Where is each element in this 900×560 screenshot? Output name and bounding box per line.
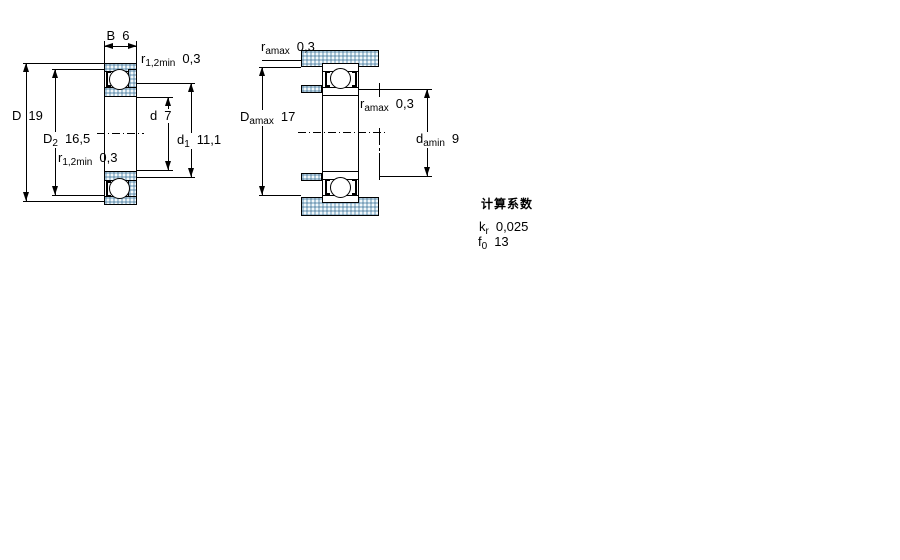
arrowhead xyxy=(52,69,58,78)
dim-value: 0,3 xyxy=(182,51,200,66)
arrowhead xyxy=(165,161,171,170)
abutment-face-line xyxy=(379,128,380,145)
bearing1-ball-bottom xyxy=(109,178,130,199)
dim-subscript: amax xyxy=(364,103,388,114)
bearing2-ball-bottom xyxy=(330,177,351,198)
bearing2-ball-top xyxy=(330,68,351,89)
ext-line xyxy=(23,63,104,64)
dim-symbol: D xyxy=(240,109,249,124)
bearing2-ring-line xyxy=(323,95,358,96)
bearing2-ring-line xyxy=(323,171,358,172)
dim-subscript: 1,2min xyxy=(62,157,92,168)
bearing2-shield-left-bottom xyxy=(325,179,330,195)
dim-line-d1 xyxy=(191,83,192,177)
arrowhead xyxy=(424,89,430,98)
dim-symbol: D xyxy=(12,108,21,123)
dim-subscript: amin xyxy=(423,138,445,149)
dim-value: 19 xyxy=(28,108,42,123)
dim-symbol: B xyxy=(107,28,116,43)
bearing2-centerline xyxy=(298,132,386,133)
dim-line-Damax xyxy=(262,67,263,195)
arrowhead xyxy=(259,186,265,195)
factor-value: 13 xyxy=(494,234,508,249)
ext-line xyxy=(52,195,104,196)
dim-symbol: d xyxy=(150,108,157,123)
factor-symbol: k xyxy=(479,219,486,234)
calc-factor-f0: f013 xyxy=(478,234,509,249)
arrowhead xyxy=(188,168,194,177)
dim-value: 7 xyxy=(164,108,171,123)
dim-label-damin: damin9 xyxy=(414,132,461,148)
ext-line xyxy=(379,176,432,177)
bearing1-centerline xyxy=(97,133,144,134)
factor-value: 0,025 xyxy=(496,219,529,234)
dim-subscript: amax xyxy=(265,46,289,57)
dim-label-d1: d111,1 xyxy=(175,133,223,149)
bearing1-shield-top xyxy=(106,71,111,87)
dim-label-ramax-mid: ramax0,3 xyxy=(360,97,414,113)
arrowhead xyxy=(23,63,29,72)
leader-line xyxy=(262,60,301,61)
arrowhead xyxy=(104,43,113,49)
ext-line xyxy=(136,177,195,178)
dim-label-B: B6 xyxy=(98,29,138,43)
bearing2-shield-right-bottom xyxy=(352,179,357,195)
ext-line xyxy=(136,170,173,171)
dim-value: 11,1 xyxy=(197,132,221,147)
dim-subscript: 1 xyxy=(184,139,190,150)
dim-label-d: d7 xyxy=(148,109,173,123)
dim-label-D2: D216,5 xyxy=(41,132,92,148)
dim-subscript: amax xyxy=(249,116,273,127)
calc-factor-kr: kr0,025 xyxy=(479,219,528,234)
ext-line xyxy=(23,201,104,202)
shaft-shoulder-top xyxy=(301,85,322,93)
arrowhead xyxy=(259,67,265,76)
arrowhead xyxy=(52,186,58,195)
calculation-factors-title: 计算系数 xyxy=(481,195,533,212)
dim-line-D xyxy=(26,63,27,201)
bearing1-ball-top xyxy=(109,69,130,90)
arrowhead xyxy=(165,97,171,106)
dim-label-Damax: Damax17 xyxy=(238,110,297,126)
dim-value: 9 xyxy=(452,131,459,146)
dim-label-ramax-top: ramax0,3 xyxy=(261,40,315,56)
dim-label-r12min-bottom: r1,2min0,3 xyxy=(58,151,117,167)
ext-line xyxy=(259,195,301,196)
dim-label-r12min-top: r1,2min0,3 xyxy=(141,52,200,68)
factor-subscript: 0 xyxy=(482,241,488,252)
dim-subscript: 1,2min xyxy=(145,58,175,69)
bearing2-shield-right-top xyxy=(352,71,357,87)
dim-symbol: D xyxy=(43,131,52,146)
ext-line xyxy=(52,69,104,70)
dim-value: 6 xyxy=(122,28,129,43)
dim-label-D: D19 xyxy=(12,109,43,123)
arrowhead xyxy=(128,43,137,49)
arrowhead xyxy=(188,83,194,92)
shaft-shoulder-bottom xyxy=(301,173,322,181)
dim-value: 0,3 xyxy=(99,150,117,165)
abutment-face-line xyxy=(379,148,380,151)
ext-line xyxy=(259,67,301,68)
ext-line xyxy=(136,97,173,98)
ext-line xyxy=(136,83,195,84)
dim-value: 16,5 xyxy=(65,131,90,146)
arrowhead xyxy=(23,192,29,201)
dim-value: 0,3 xyxy=(396,96,414,111)
dim-subscript: 2 xyxy=(52,138,58,149)
bearing2-shield-left-top xyxy=(325,71,330,87)
dim-value: 0,3 xyxy=(297,39,315,54)
abutment-face-tick xyxy=(379,83,380,97)
dim-value: 17 xyxy=(281,109,295,124)
arrowhead xyxy=(424,167,430,176)
bearing-drawing-page: B6 D19 D216,5 d7 xyxy=(0,0,900,560)
ext-line xyxy=(358,89,432,90)
bearing1-shield-bottom xyxy=(106,181,111,197)
